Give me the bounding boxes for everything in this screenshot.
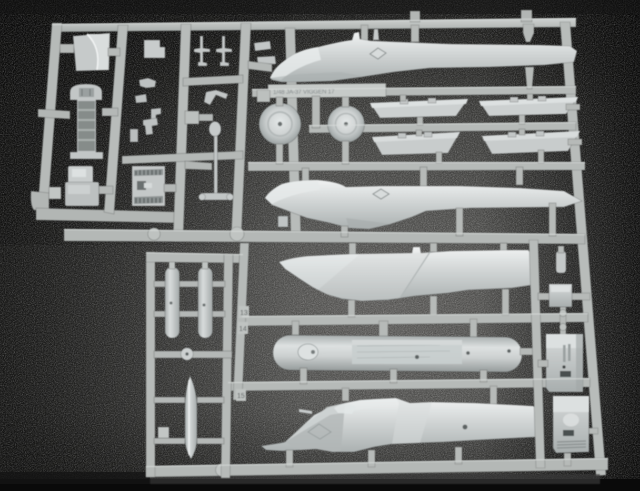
svg-text:14: 14	[239, 326, 247, 333]
svg-text:13: 13	[240, 310, 248, 317]
svg-text:15: 15	[237, 393, 245, 400]
